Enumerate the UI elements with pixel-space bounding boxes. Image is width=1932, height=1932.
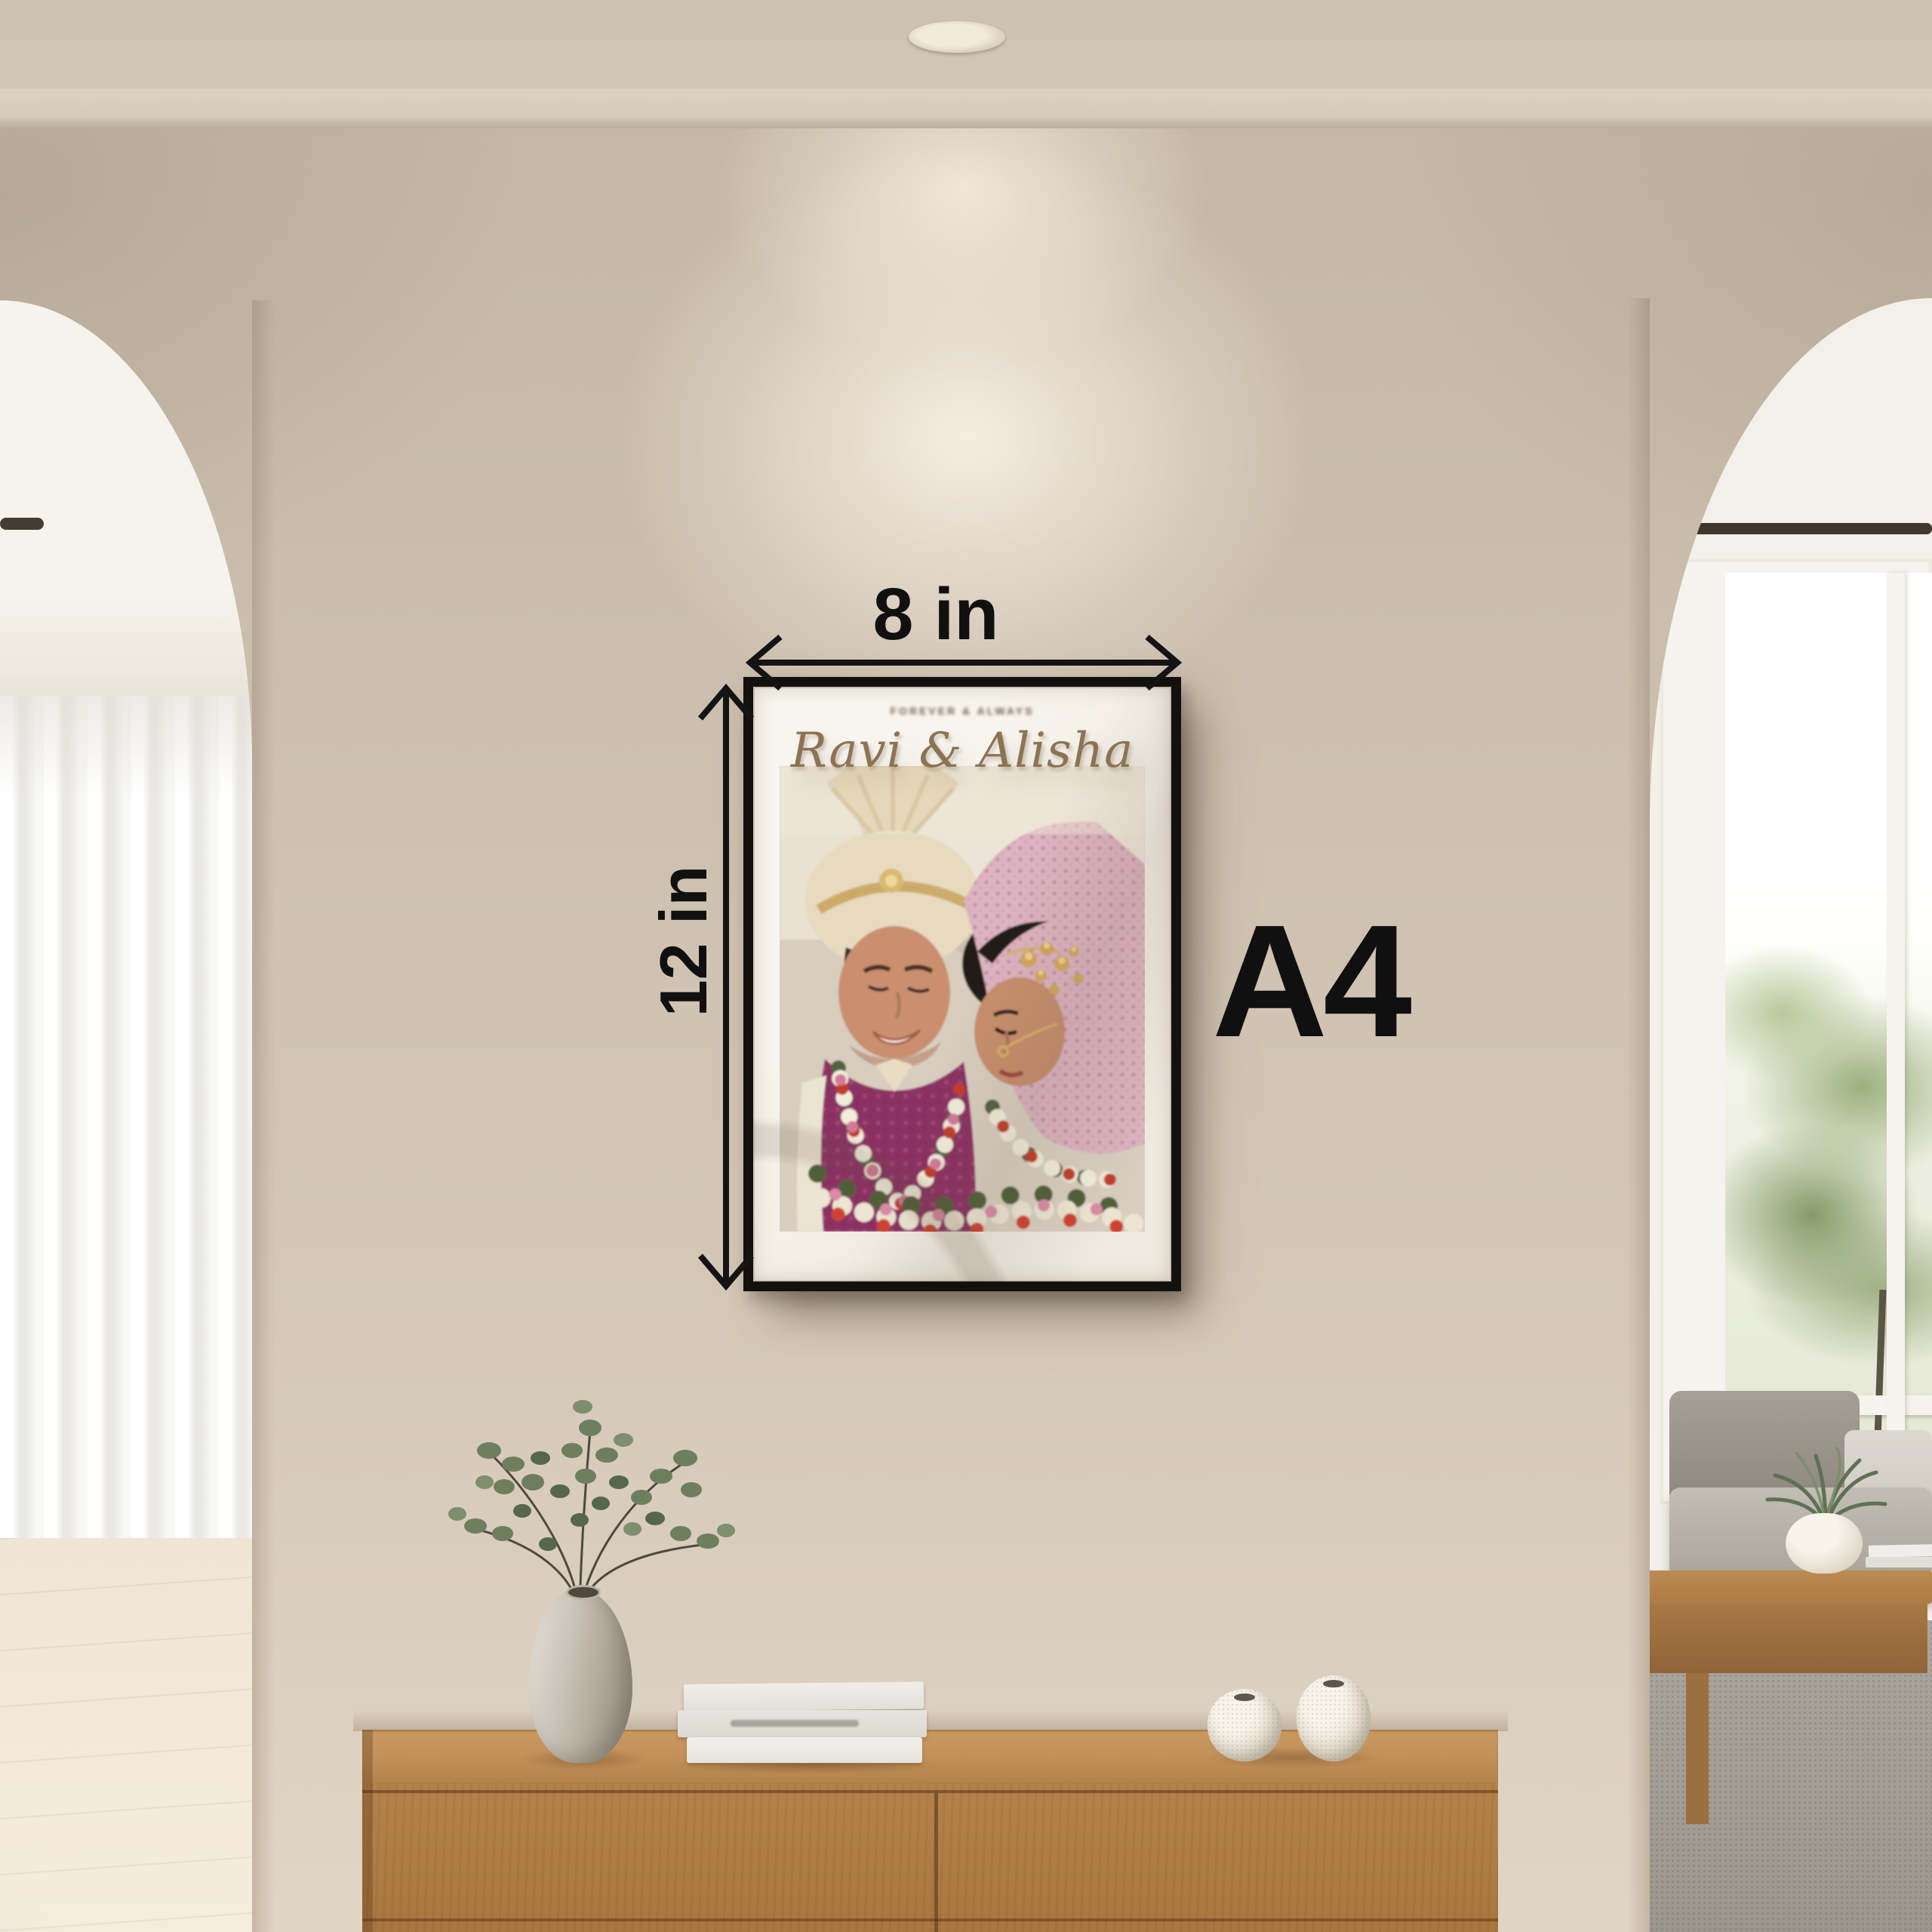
eucalyptus-branches bbox=[392, 1386, 770, 1612]
console-drawer-divider bbox=[934, 1793, 938, 1932]
console-lower-seam bbox=[362, 1918, 1498, 1921]
stacked-book bbox=[687, 1737, 922, 1763]
console-side-edge bbox=[362, 1730, 373, 1932]
window bbox=[1660, 559, 1932, 1504]
frame-title-names: Ravi & Alisha bbox=[753, 723, 1171, 779]
vase-opening bbox=[1323, 1680, 1344, 1687]
height-dimension-label: 12 in bbox=[645, 858, 722, 1024]
coffee-table-front bbox=[1650, 1604, 1927, 1673]
console-drawer-seam bbox=[362, 1790, 1498, 1793]
curtain-rod-left bbox=[0, 518, 44, 530]
round-textured-vase bbox=[1297, 1675, 1371, 1761]
coffee-table-book bbox=[1869, 1544, 1932, 1557]
paper-size-label: A4 bbox=[1212, 889, 1423, 1073]
left-arched-doorway bbox=[0, 300, 252, 1932]
width-dimension-label: 8 in bbox=[860, 572, 1011, 657]
coffee-table-top bbox=[1650, 1571, 1932, 1604]
crown-molding bbox=[0, 89, 1932, 128]
room-scene: FOREVER & ALWAYS bbox=[0, 0, 1932, 1932]
stacked-book bbox=[678, 1710, 927, 1737]
plant-pot bbox=[1786, 1513, 1863, 1574]
ceramic-vase bbox=[528, 1589, 632, 1763]
round-textured-vase bbox=[1207, 1689, 1281, 1761]
arch-soffit bbox=[0, 587, 252, 697]
book-spine-text-blur bbox=[731, 1720, 859, 1727]
wedding-photo bbox=[780, 766, 1145, 1232]
window-mullion-vertical bbox=[1887, 573, 1905, 1491]
curtain-rod-right bbox=[1656, 523, 1932, 534]
picture-frame: FOREVER & ALWAYS bbox=[743, 677, 1181, 1291]
frame-caption-text: FOREVER & ALWAYS bbox=[753, 705, 1171, 717]
coffee-table-book bbox=[1866, 1557, 1932, 1567]
sheer-curtains bbox=[0, 696, 252, 1543]
coffee-table-leg bbox=[1686, 1673, 1709, 1824]
recessed-spotlight bbox=[909, 21, 1005, 53]
wall-edge-shadow-left bbox=[252, 300, 275, 1932]
console-front bbox=[362, 1783, 1498, 1932]
right-arched-opening bbox=[1650, 298, 1932, 1932]
wall-edge-shadow-right bbox=[1627, 298, 1650, 1932]
vase-opening bbox=[1234, 1694, 1255, 1701]
wood-floor bbox=[0, 1538, 252, 1932]
frame-mat: FOREVER & ALWAYS bbox=[753, 687, 1171, 1281]
vase-opening bbox=[566, 1585, 601, 1600]
stacked-book bbox=[684, 1681, 924, 1711]
